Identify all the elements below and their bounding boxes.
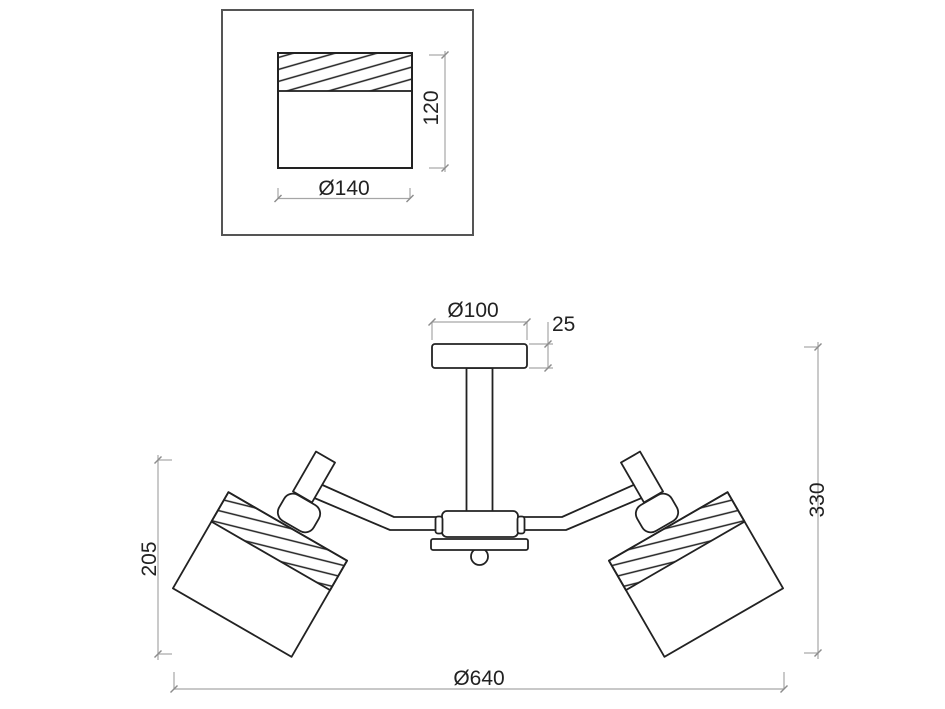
fixture [173, 344, 783, 657]
ceiling-canopy [432, 344, 527, 368]
hub-right-cap [518, 517, 525, 534]
right-shade [609, 492, 783, 657]
dim-label-shade-drop: 205 [138, 541, 161, 576]
ceiling-lamp-drawing: Ø140 120 Ø100 25 [0, 0, 945, 709]
detail-shade-hatch-band [278, 53, 412, 91]
dim-label-canopy-height: 25 [552, 313, 575, 336]
bottom-plate [431, 539, 528, 550]
dim-canopy-height [529, 322, 553, 372]
detail-view: Ø140 120 [222, 10, 473, 235]
hub-left-cap [436, 517, 443, 534]
left-shade [173, 492, 347, 657]
technical-drawing-page: Ø140 120 Ø100 25 [0, 0, 945, 709]
dim-label-overall-height: 330 [806, 482, 829, 517]
dim-label-overall-width: Ø640 [453, 667, 504, 690]
dim-label-detail-height: 120 [420, 90, 443, 125]
dim-label-detail-width: Ø140 [318, 177, 369, 200]
dim-label-canopy-width: Ø100 [447, 299, 498, 322]
left-arm [312, 483, 442, 530]
stem [467, 368, 493, 513]
right-arm [514, 483, 644, 530]
center-hub [442, 511, 518, 537]
